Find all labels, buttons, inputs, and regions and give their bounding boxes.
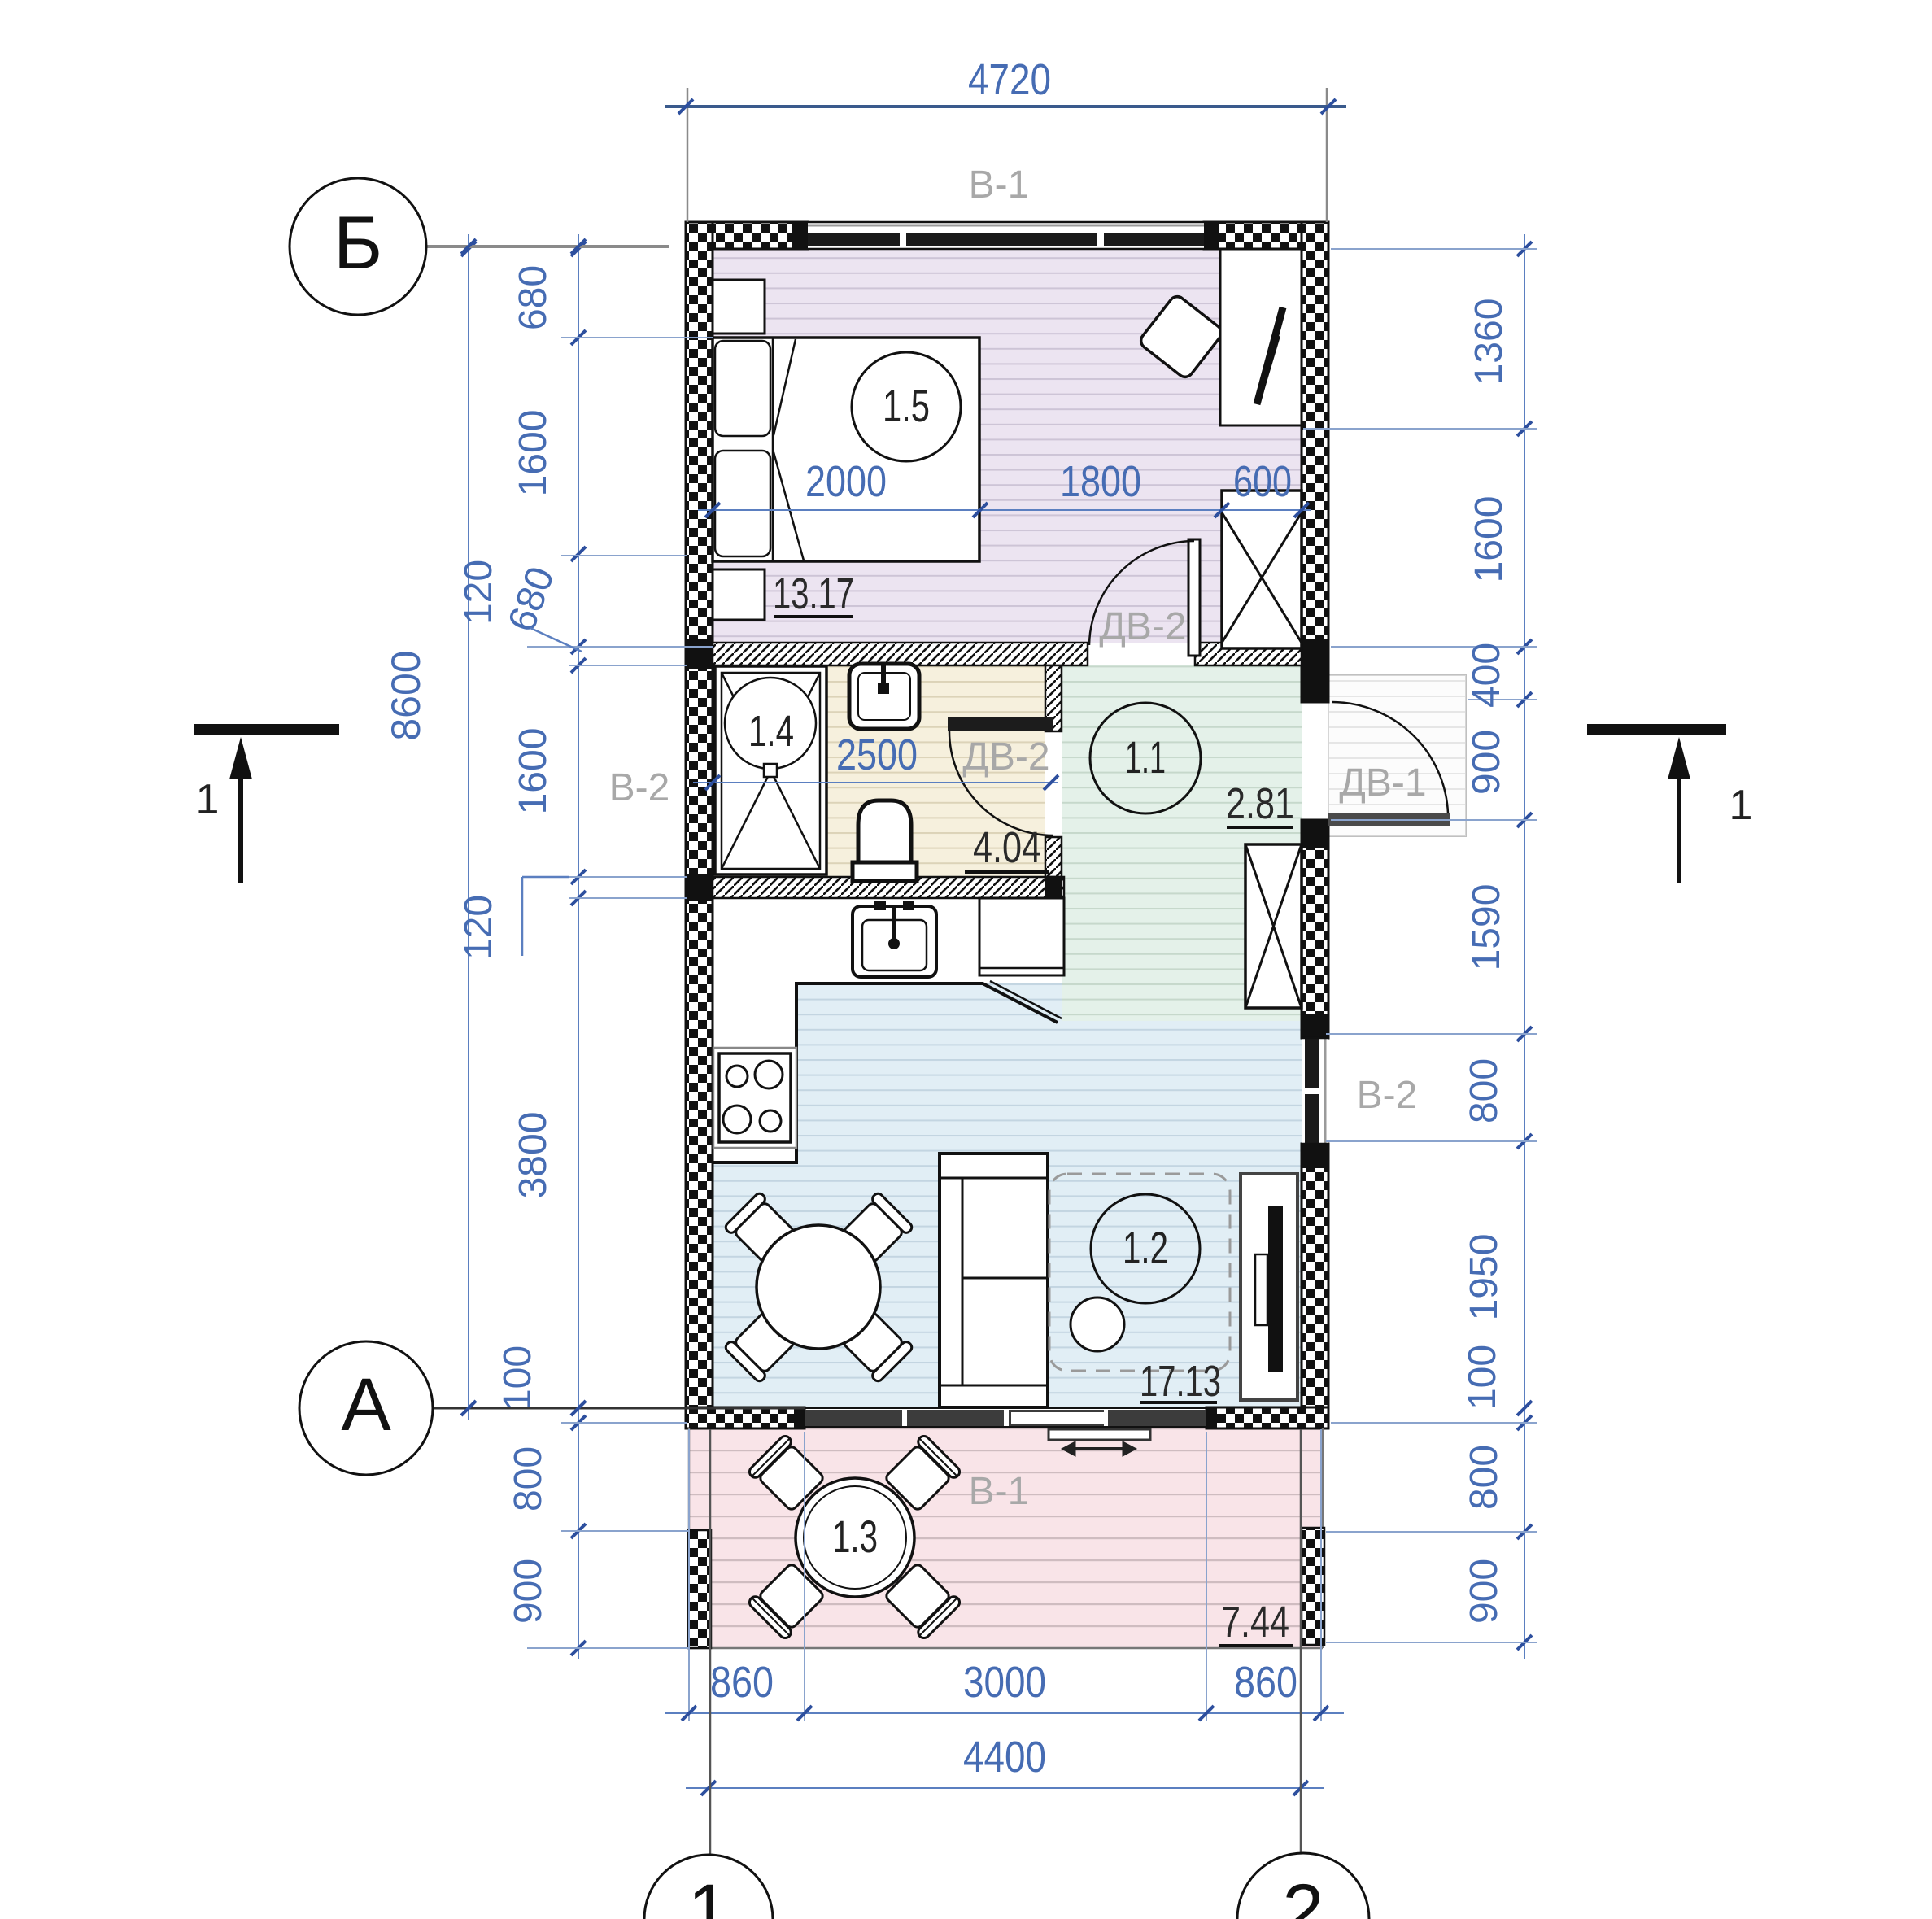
svg-text:120: 120	[457, 560, 500, 625]
svg-text:1800: 1800	[1060, 457, 1141, 506]
svg-text:600: 600	[1233, 457, 1292, 506]
svg-text:17.13: 17.13	[1140, 1357, 1221, 1406]
svg-text:3000: 3000	[963, 1658, 1046, 1707]
svg-text:3800: 3800	[512, 1112, 555, 1199]
svg-text:100: 100	[496, 1345, 539, 1411]
svg-text:4400: 4400	[963, 1733, 1046, 1782]
svg-text:1.3: 1.3	[832, 1511, 878, 1562]
svg-text:Б: Б	[334, 202, 382, 285]
svg-text:800: 800	[1463, 1058, 1506, 1123]
svg-text:1950: 1950	[1463, 1234, 1506, 1321]
svg-text:В-1: В-1	[969, 164, 1030, 207]
svg-text:В-2: В-2	[609, 766, 670, 809]
svg-text:2: 2	[1282, 1869, 1324, 1919]
svg-text:4720: 4720	[968, 55, 1051, 104]
svg-text:800: 800	[507, 1446, 550, 1511]
svg-text:13.17: 13.17	[773, 569, 854, 618]
svg-text:1.4: 1.4	[748, 707, 794, 756]
svg-text:680: 680	[512, 265, 555, 330]
svg-text:1: 1	[1729, 782, 1753, 829]
svg-text:1600: 1600	[512, 728, 555, 815]
svg-text:120: 120	[457, 895, 500, 960]
svg-text:400: 400	[1465, 643, 1508, 708]
svg-text:2500: 2500	[836, 731, 918, 779]
svg-text:ДВ-2: ДВ-2	[962, 735, 1049, 779]
svg-text:900: 900	[1465, 730, 1508, 795]
svg-text:ДВ-2: ДВ-2	[1099, 605, 1186, 648]
svg-text:А: А	[341, 1363, 391, 1446]
svg-text:1: 1	[687, 1869, 729, 1919]
svg-text:8600: 8600	[383, 650, 429, 740]
svg-text:7.44: 7.44	[1221, 1598, 1289, 1646]
svg-text:100: 100	[1461, 1345, 1504, 1410]
svg-text:800: 800	[1463, 1445, 1506, 1510]
svg-text:1600: 1600	[1468, 496, 1511, 583]
svg-text:В-1: В-1	[969, 1470, 1030, 1513]
svg-text:900: 900	[1463, 1559, 1506, 1624]
svg-text:900: 900	[507, 1559, 550, 1624]
svg-text:1.2: 1.2	[1123, 1222, 1168, 1273]
svg-text:1.5: 1.5	[883, 380, 930, 431]
svg-text:860: 860	[710, 1658, 774, 1707]
svg-text:1: 1	[196, 776, 220, 823]
svg-text:2.81: 2.81	[1226, 779, 1294, 828]
svg-text:860: 860	[1234, 1658, 1297, 1707]
svg-text:1.1: 1.1	[1125, 731, 1166, 783]
svg-text:1590: 1590	[1465, 884, 1508, 971]
svg-text:В-2: В-2	[1357, 1074, 1418, 1117]
svg-text:4.04: 4.04	[973, 823, 1041, 872]
svg-text:1600: 1600	[512, 410, 555, 497]
svg-text:2000: 2000	[805, 457, 887, 506]
svg-text:ДВ-1: ДВ-1	[1339, 761, 1426, 805]
svg-text:1360: 1360	[1468, 299, 1511, 386]
